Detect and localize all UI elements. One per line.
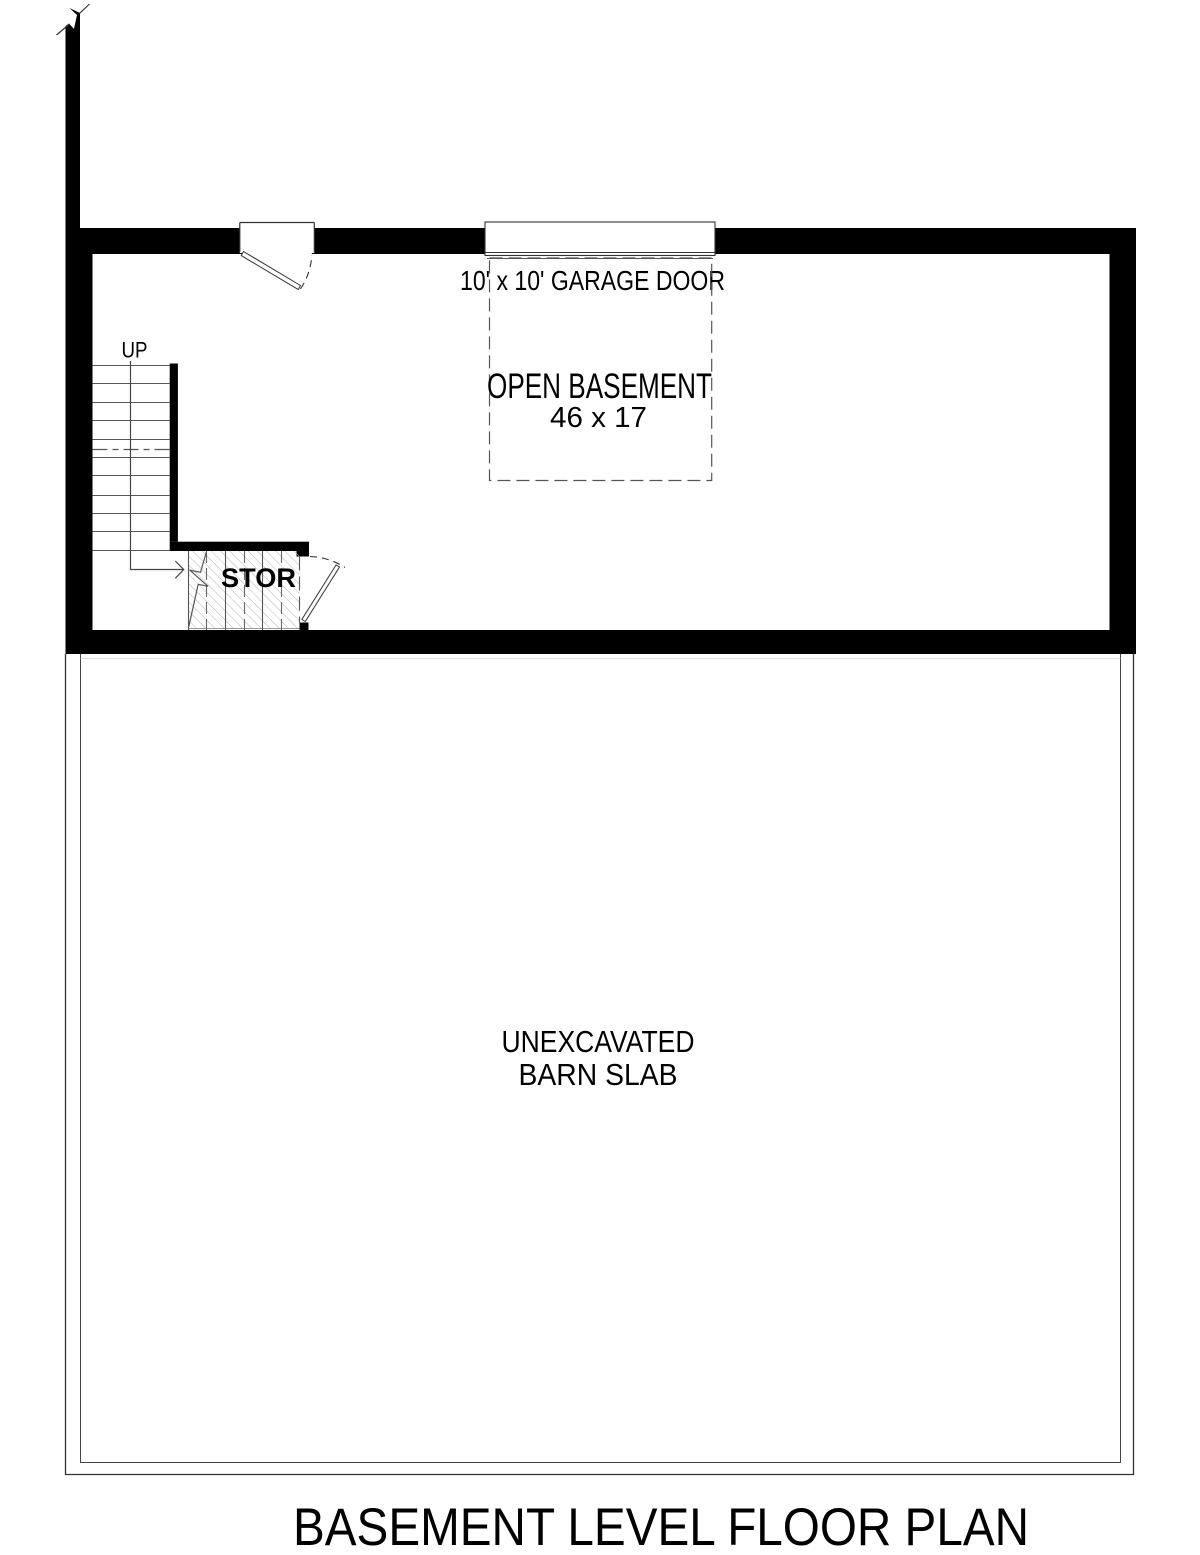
svg-text:46 x 17: 46 x 17 — [550, 402, 647, 434]
svg-text:BARN SLAB: BARN SLAB — [519, 1057, 678, 1092]
svg-text:UP: UP — [122, 338, 148, 363]
svg-text:STOR: STOR — [221, 563, 296, 593]
svg-text:OPEN BASEMENT: OPEN BASEMENT — [487, 367, 712, 406]
svg-text:UNEXCAVATED: UNEXCAVATED — [502, 1024, 695, 1059]
svg-text:BASEMENT LEVEL FLOOR PLAN: BASEMENT LEVEL FLOOR PLAN — [293, 1498, 1029, 1555]
svg-text:10' x 10' GARAGE DOOR: 10' x 10' GARAGE DOOR — [460, 265, 725, 296]
